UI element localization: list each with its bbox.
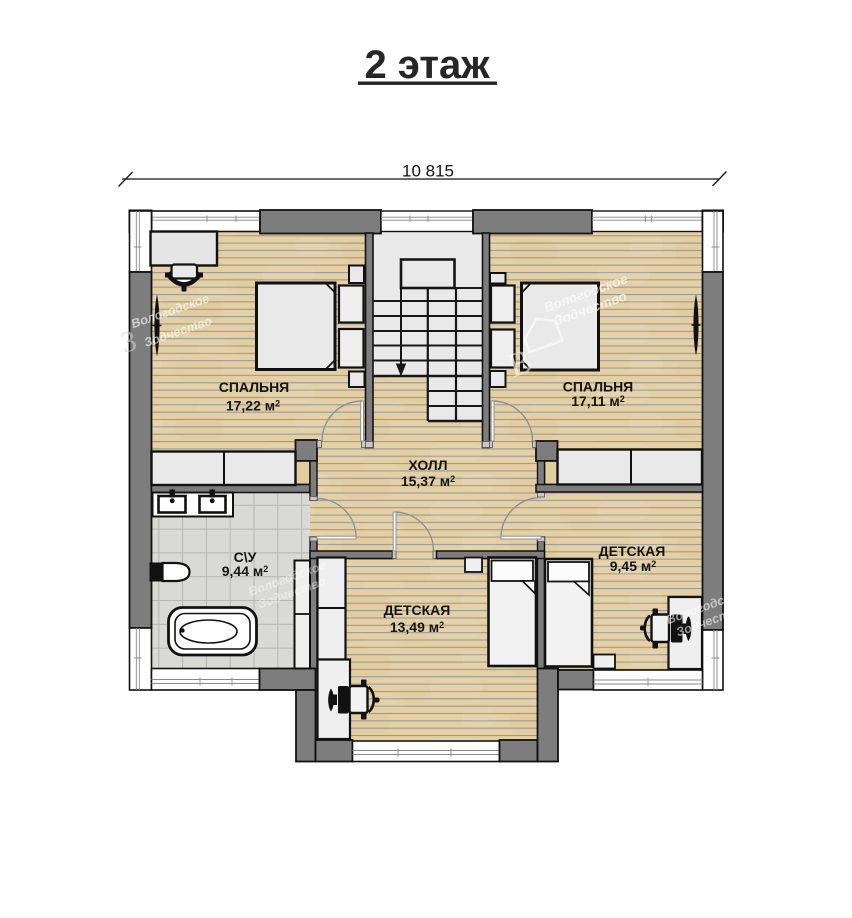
- svg-text:9,44 м2: 9,44 м2: [222, 563, 269, 579]
- svg-text:СПАЛЬНЯ: СПАЛЬНЯ: [219, 379, 290, 395]
- svg-text:ХОЛЛ: ХОЛЛ: [408, 457, 447, 473]
- svg-text:ДЕТСКАЯ: ДЕТСКАЯ: [599, 543, 666, 559]
- svg-text:17,22 м2: 17,22 м2: [226, 398, 280, 414]
- svg-text:9,45 м2: 9,45 м2: [610, 558, 657, 574]
- svg-text:10 815: 10 815: [402, 162, 454, 181]
- svg-text:15,37 м2: 15,37 м2: [401, 473, 455, 489]
- svg-text:ДЕТСКАЯ: ДЕТСКАЯ: [384, 602, 451, 618]
- svg-text:17,11 м2: 17,11 м2: [571, 393, 625, 409]
- svg-text:2 этаж: 2 этаж: [364, 43, 490, 87]
- svg-text:13,49 м2: 13,49 м2: [390, 619, 444, 635]
